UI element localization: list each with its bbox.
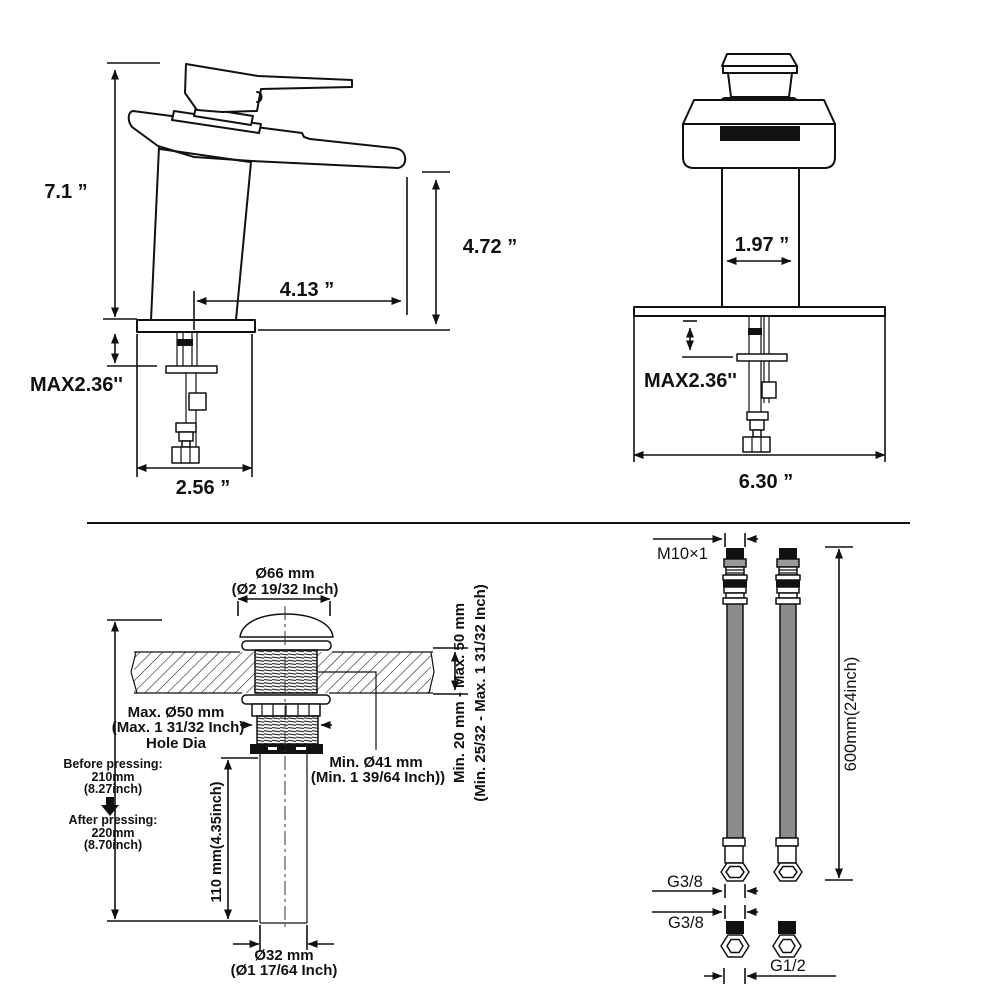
countertop-hatch-left	[134, 652, 255, 693]
drain-gasket	[250, 744, 323, 754]
min-dia-in: (Min. 1 39/64 Inch))	[311, 769, 445, 786]
handle-knob	[722, 54, 797, 66]
front-view-dimensions: 1.97 ” MAX2.36'' 6.30 ”	[634, 234, 885, 493]
waterfall-spout	[129, 111, 405, 168]
top-thread-label: M10×1	[657, 545, 708, 563]
dim-body-width: 1.97 ”	[735, 234, 789, 256]
after-pressing-in: (8.70inch)	[84, 838, 142, 852]
side-under-deck-shank	[166, 332, 217, 463]
tailpipe-dia-in: (Ø1 17/64 Inch)	[231, 962, 338, 979]
faucet-handle	[185, 64, 352, 112]
dim-spout-reach: 4.13 ”	[280, 279, 334, 301]
drain-lower-threads	[257, 716, 318, 744]
hose-nut-label-2: G3/8	[668, 914, 704, 932]
body-right-edge	[236, 162, 251, 320]
hole-dia-label: Hole Dia	[146, 735, 207, 752]
spout-head-top	[683, 100, 835, 124]
before-pressing-in: (8.27inch)	[84, 782, 142, 796]
hose-length-label: 600mm(24inch)	[842, 657, 860, 772]
dim-overall-height: 7.1 ”	[44, 181, 87, 203]
faucet-front-view: 1.97 ” MAX2.36'' 6.30 ”	[634, 54, 885, 493]
spout-opening	[720, 126, 800, 141]
dim-base-width: 2.56 ”	[176, 477, 230, 499]
front-under-deck-shank	[737, 316, 787, 452]
before-pressing-label: Before pressing:	[63, 757, 162, 771]
drain-cap-flange	[242, 641, 331, 650]
diagram-canvas: 7.1 ” 4.72 ” 4.13 ” MAX2.36'' 2.56 ”	[0, 0, 1000, 1000]
dim-below-deck-side: MAX2.36''	[30, 374, 123, 396]
handle-neck	[728, 73, 792, 97]
dim-spout-height: 4.72 ”	[463, 236, 517, 258]
body-left-edge	[151, 147, 159, 320]
dim-plate-width: 6.30 ”	[739, 471, 793, 493]
drain-cap-dome	[240, 614, 333, 637]
hose-tube-left	[727, 603, 743, 838]
drain-washer	[242, 695, 330, 704]
drain-lock-nut	[252, 704, 320, 716]
faucet-side-view: 7.1 ” 4.72 ” 4.13 ” MAX2.36'' 2.56 ”	[30, 63, 517, 499]
tailpipe-length: 110 mm(4.35inch)	[209, 781, 225, 902]
drain-tailpipe	[260, 754, 307, 923]
drain-upper-threads	[255, 650, 317, 693]
after-pressing-label: After pressing:	[69, 813, 158, 827]
handle-knob-band	[723, 66, 797, 73]
cap-dia-mm: Ø66 mm	[255, 565, 314, 582]
technical-drawing: 7.1 ” 4.72 ” 4.13 ” MAX2.36'' 2.56 ”	[0, 0, 1000, 1000]
cap-dia-in: (Ø2 19/32 Inch)	[232, 581, 339, 598]
base-plate	[137, 320, 255, 332]
popup-drain-view: Ø66 mm (Ø2 19/32 Inch) Max. Ø50 mm (Max.…	[63, 565, 489, 979]
supply-hose-view: M10×1 600mm(24inch) G3/8 G3/8 G1/2	[652, 533, 860, 984]
deck-thickness-in: (Min. 25/32 - Max. 1 31/32 Inch)	[472, 584, 489, 802]
hose-labels: M10×1 600mm(24inch) G3/8 G3/8 G1/2	[657, 545, 860, 975]
deck-plate	[634, 307, 885, 316]
hole-dia-in: (Max. 1 31/32 Inch)	[112, 719, 245, 736]
hose-nut-label: G3/8	[667, 873, 703, 891]
hose-tube-right	[780, 603, 796, 838]
dim-below-deck-front: MAX2.36''	[644, 370, 737, 392]
deck-thickness-mm: Min. 20 mm - Max. 50 mm	[451, 603, 468, 783]
adapter-thread-label: G1/2	[770, 957, 806, 975]
